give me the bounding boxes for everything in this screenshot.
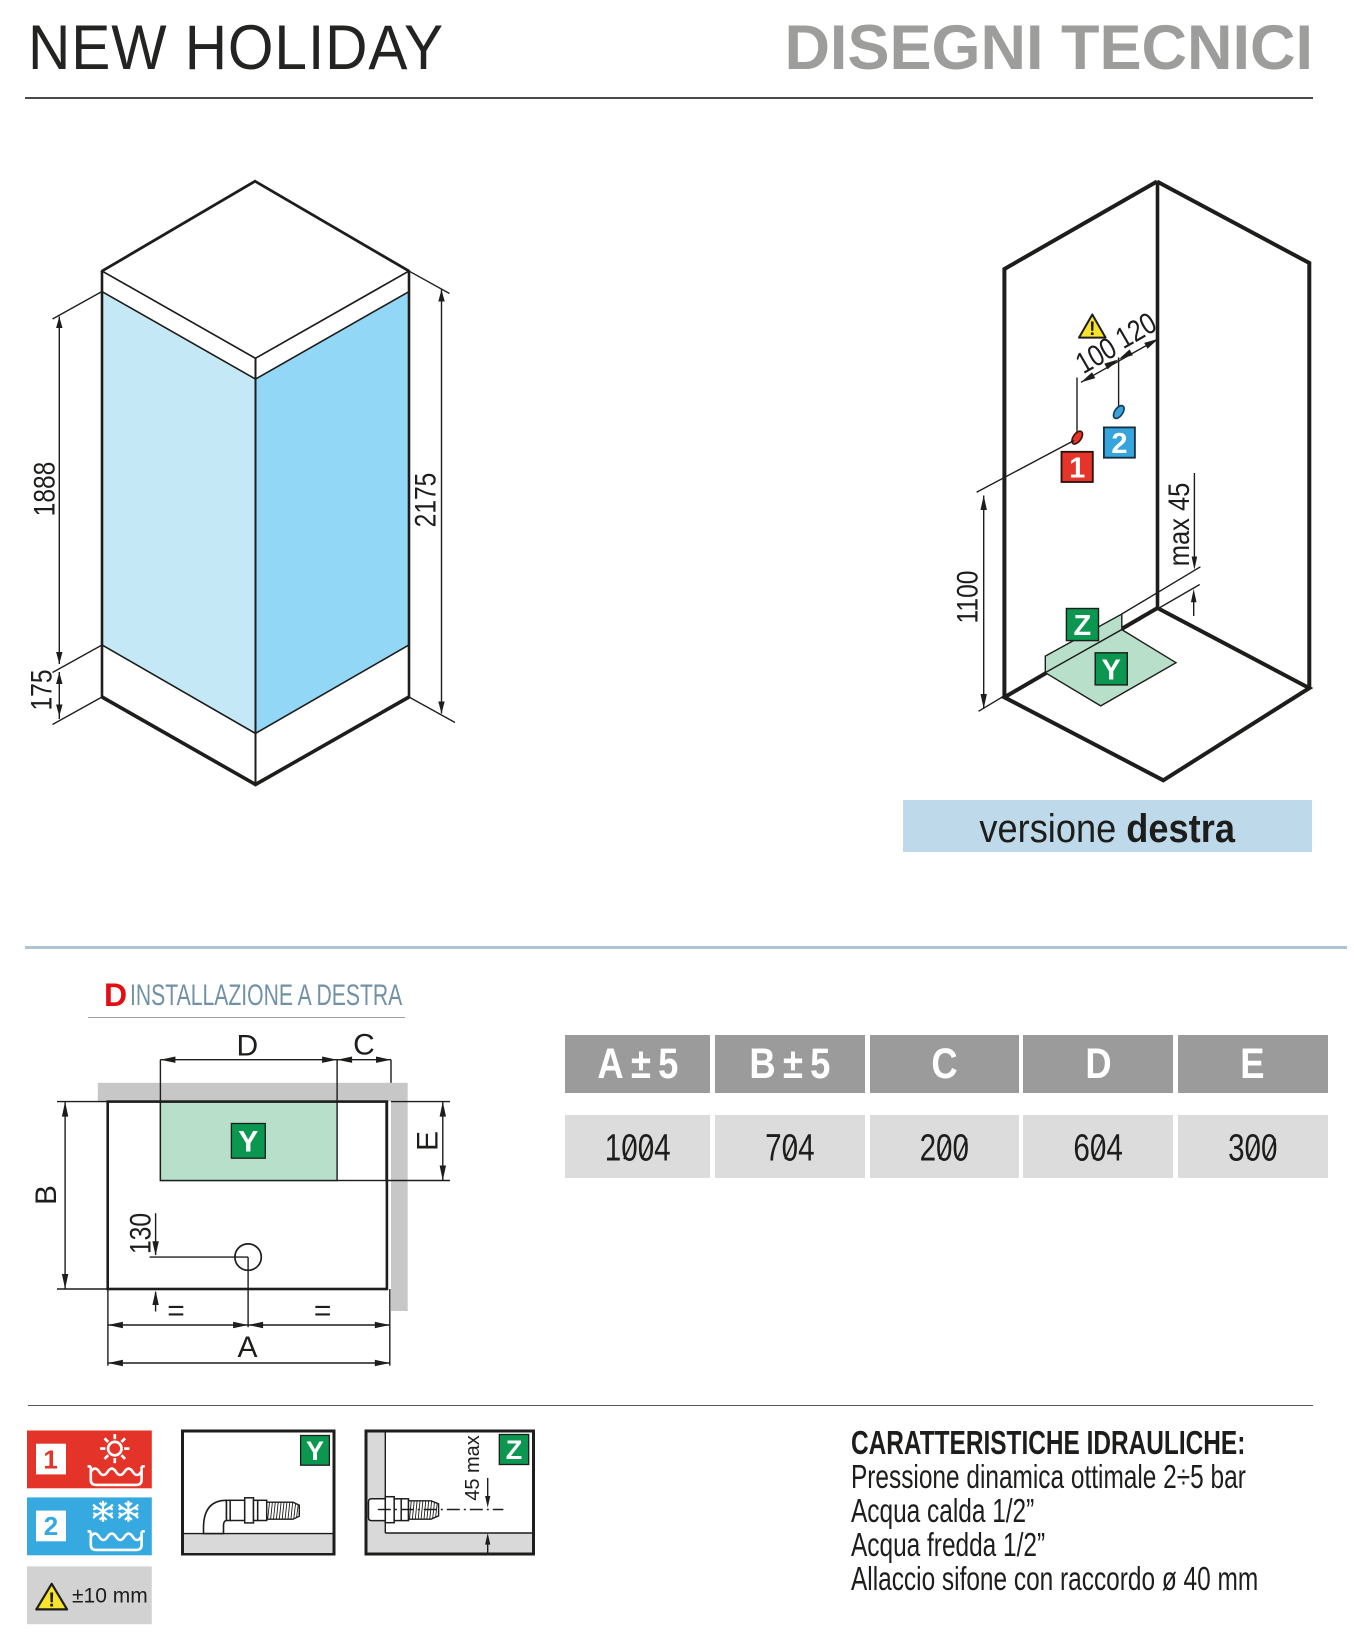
svg-text:Y: Y bbox=[306, 1436, 324, 1466]
svg-text:Y: Y bbox=[1102, 654, 1121, 686]
svg-text:D: D bbox=[236, 1030, 258, 1063]
svg-text:1: 1 bbox=[43, 1444, 57, 1474]
svg-text:A: A bbox=[237, 1331, 257, 1364]
svg-text:120: 120 bbox=[1110, 305, 1162, 355]
svg-text:C: C bbox=[353, 1029, 375, 1062]
svg-text:2: 2 bbox=[1111, 428, 1127, 460]
svg-text:175: 175 bbox=[25, 669, 58, 710]
svg-text:±10 mm: ±10 mm bbox=[72, 1585, 148, 1608]
svg-text:1: 1 bbox=[1069, 453, 1085, 485]
svg-text:1004: 1004 bbox=[605, 1127, 671, 1169]
svg-text:B: B bbox=[30, 1185, 63, 1205]
svg-text:2: 2 bbox=[44, 1511, 58, 1541]
svg-text:1100: 1100 bbox=[950, 571, 984, 624]
svg-text:=: = bbox=[167, 1295, 185, 1328]
svg-text:2175: 2175 bbox=[408, 473, 442, 528]
svg-text:1888: 1888 bbox=[27, 462, 61, 517]
svg-text:130: 130 bbox=[123, 1213, 157, 1254]
svg-text:!: ! bbox=[48, 1590, 55, 1612]
svg-text:100: 100 bbox=[1070, 330, 1122, 380]
svg-text:45 max: 45 max bbox=[462, 1435, 484, 1501]
svg-text:max 45: max 45 bbox=[1162, 483, 1195, 567]
svg-text:E: E bbox=[412, 1131, 445, 1151]
svg-text:Z: Z bbox=[1074, 610, 1092, 642]
svg-text:=: = bbox=[314, 1295, 332, 1328]
svg-text:Z: Z bbox=[506, 1435, 523, 1465]
svg-text:Y: Y bbox=[238, 1126, 258, 1159]
